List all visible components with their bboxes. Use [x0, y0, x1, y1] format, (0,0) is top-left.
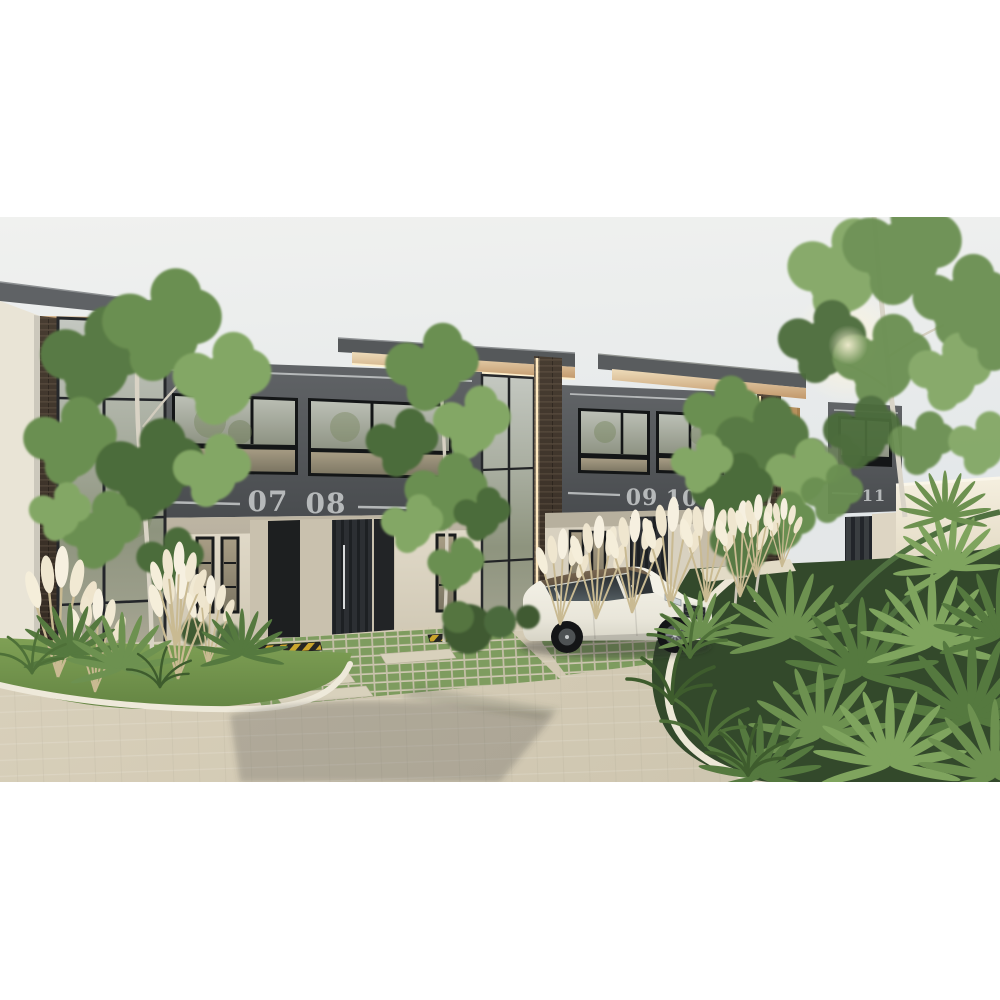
unit-number-09: 09	[626, 485, 659, 511]
top-white-margin	[0, 0, 1000, 217]
bottom-white-margin	[0, 782, 1000, 1000]
unit-number-07: 07	[248, 485, 289, 518]
unit-number-08: 08	[306, 487, 347, 520]
scene-svg: 07 08	[0, 217, 1000, 782]
unit-number-11: 11	[862, 486, 886, 505]
entry-07-opening	[268, 520, 300, 645]
render-area: 07 08	[0, 217, 1000, 782]
slat-fence	[845, 516, 872, 567]
window-unit09	[578, 408, 650, 475]
render-canvas: 07 08	[0, 0, 1000, 1000]
entry-door-08	[332, 519, 372, 643]
sun-core	[828, 325, 868, 365]
